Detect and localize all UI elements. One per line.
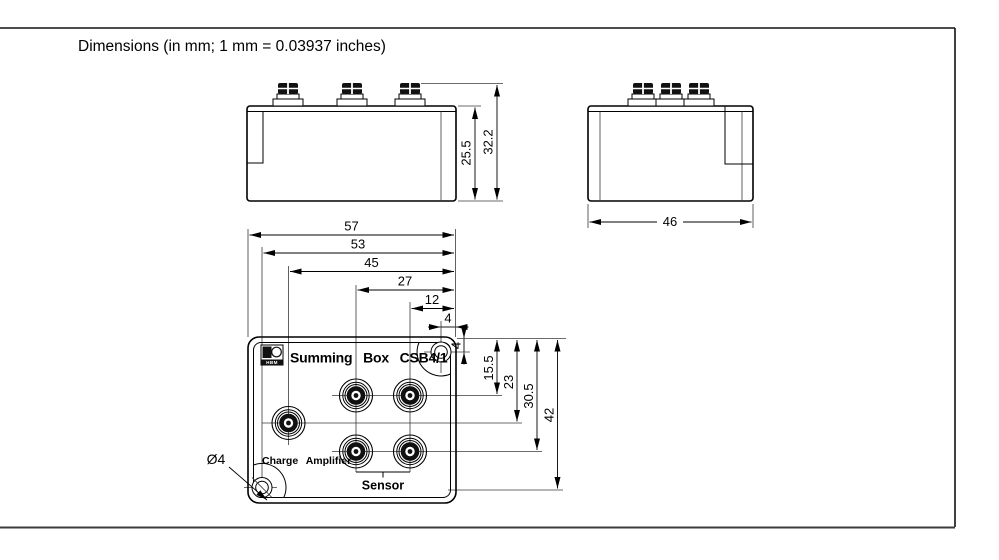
dim-15.5-label: 15.5 bbox=[481, 355, 496, 380]
product-label: Summing Box CSB4/1 bbox=[290, 350, 448, 366]
side-view: 46 bbox=[588, 83, 753, 229]
cable-gland-icon bbox=[337, 83, 367, 106]
side-housing-outline bbox=[588, 106, 753, 201]
front-view: 25.5 32.2 bbox=[247, 83, 503, 201]
dim-42-label: 42 bbox=[542, 408, 557, 422]
dim-width-label: 46 bbox=[663, 214, 677, 229]
dimension-drawing: Dimensions (in mm; 1 mm = 0.03937 inches… bbox=[0, 0, 999, 560]
cable-gland-icon bbox=[395, 83, 425, 106]
dim-27-label: 27 bbox=[398, 274, 412, 289]
cable-gland-icon bbox=[628, 83, 658, 106]
vertical-dimensions: 4 15.5 23 30.5 42 bbox=[449, 326, 558, 489]
dim-overall-height-label: 32.2 bbox=[481, 129, 496, 154]
dim-4h-label: 4 bbox=[444, 311, 451, 326]
cable-gland-icon bbox=[656, 83, 686, 106]
page-title: Dimensions (in mm; 1 mm = 0.03937 inches… bbox=[78, 38, 386, 55]
hole-diameter-label: Ø4 bbox=[207, 451, 226, 467]
horizontal-dimensions: 57 53 45 27 12 4 bbox=[250, 219, 469, 328]
hbm-logo: HBM bbox=[261, 345, 283, 365]
dim-45-label: 45 bbox=[364, 255, 378, 270]
top-view: HBM Summing Box CSB4/1 Charge Amplifier … bbox=[207, 219, 566, 504]
sensor-label: Sensor bbox=[362, 479, 405, 493]
dim-23-label: 23 bbox=[501, 375, 516, 389]
datasheet-page: Dimensions (in mm; 1 mm = 0.03937 inches… bbox=[0, 0, 999, 560]
cable-gland-icon bbox=[273, 83, 303, 106]
front-housing-outline bbox=[247, 106, 456, 201]
dim-12-label: 12 bbox=[425, 292, 439, 307]
charge-amplifier-label: Charge Amplifier bbox=[262, 455, 351, 467]
page-frame bbox=[0, 28, 955, 528]
hbm-logo-text: HBM bbox=[266, 360, 278, 365]
dim-53-label: 53 bbox=[351, 237, 365, 252]
dim-body-height-label: 25.5 bbox=[459, 140, 474, 165]
cable-gland-icon bbox=[684, 83, 714, 106]
dim-30.5-label: 30.5 bbox=[521, 383, 536, 408]
dim-57-label: 57 bbox=[344, 219, 358, 234]
dim-4v-label: 4 bbox=[449, 342, 464, 349]
